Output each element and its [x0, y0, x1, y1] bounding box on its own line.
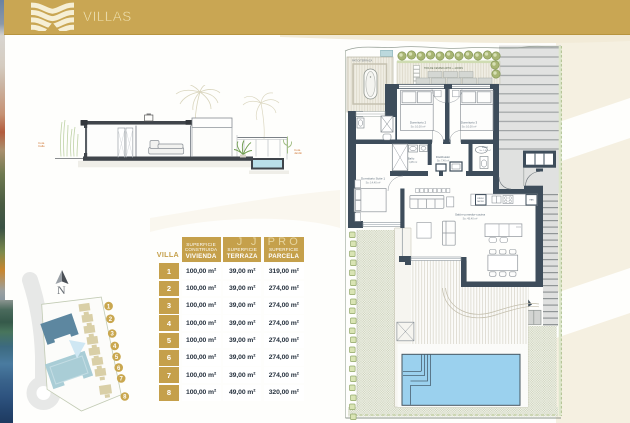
svg-text:Dormitorio 2: Dormitorio 2 — [410, 121, 427, 125]
svg-text:MICRO: MICRO — [477, 201, 484, 203]
svg-text:Su: 7,40 m²: Su: 7,40 m² — [437, 160, 450, 163]
svg-text:Su: 45,40 m²: Su: 45,40 m² — [463, 216, 478, 220]
svg-text:Salón-comedor-cocina: Salón-comedor-cocina — [455, 213, 485, 217]
svg-text:Su: 10,00 m²: Su: 10,00 m² — [462, 124, 477, 128]
svg-text:Su: 10,00 m²: Su: 10,00 m² — [411, 124, 426, 128]
svg-text:PAN: PAN — [530, 199, 535, 202]
svg-text:Distribuidor: Distribuidor — [436, 155, 450, 159]
svg-text:CotaJardin: CotaJardin — [294, 148, 303, 155]
svg-text:Dormitorio 3: Dormitorio 3 — [461, 121, 478, 125]
svg-text:FRIGO: FRIGO — [478, 198, 485, 200]
svg-text:TIRA DE CESPED ARTIF. + JARDIN: TIRA DE CESPED ARTIF. + JARDIN — [424, 67, 463, 70]
svg-text:CotaCalle: CotaCalle — [38, 141, 45, 148]
svg-text:PATIO/TERRAZA: PATIO/TERRAZA — [352, 59, 372, 63]
svg-text:Aseo: Aseo — [482, 145, 488, 149]
svg-text:Su: 1,80 m²: Su: 1,80 m² — [479, 149, 491, 152]
svg-text:Baño: Baño — [408, 157, 415, 161]
svg-text:Dormitorio Suite 1: Dormitorio Suite 1 — [361, 177, 385, 181]
svg-text:Su: 14,40 m²: Su: 14,40 m² — [366, 180, 381, 184]
svg-text:N: N — [57, 283, 66, 297]
